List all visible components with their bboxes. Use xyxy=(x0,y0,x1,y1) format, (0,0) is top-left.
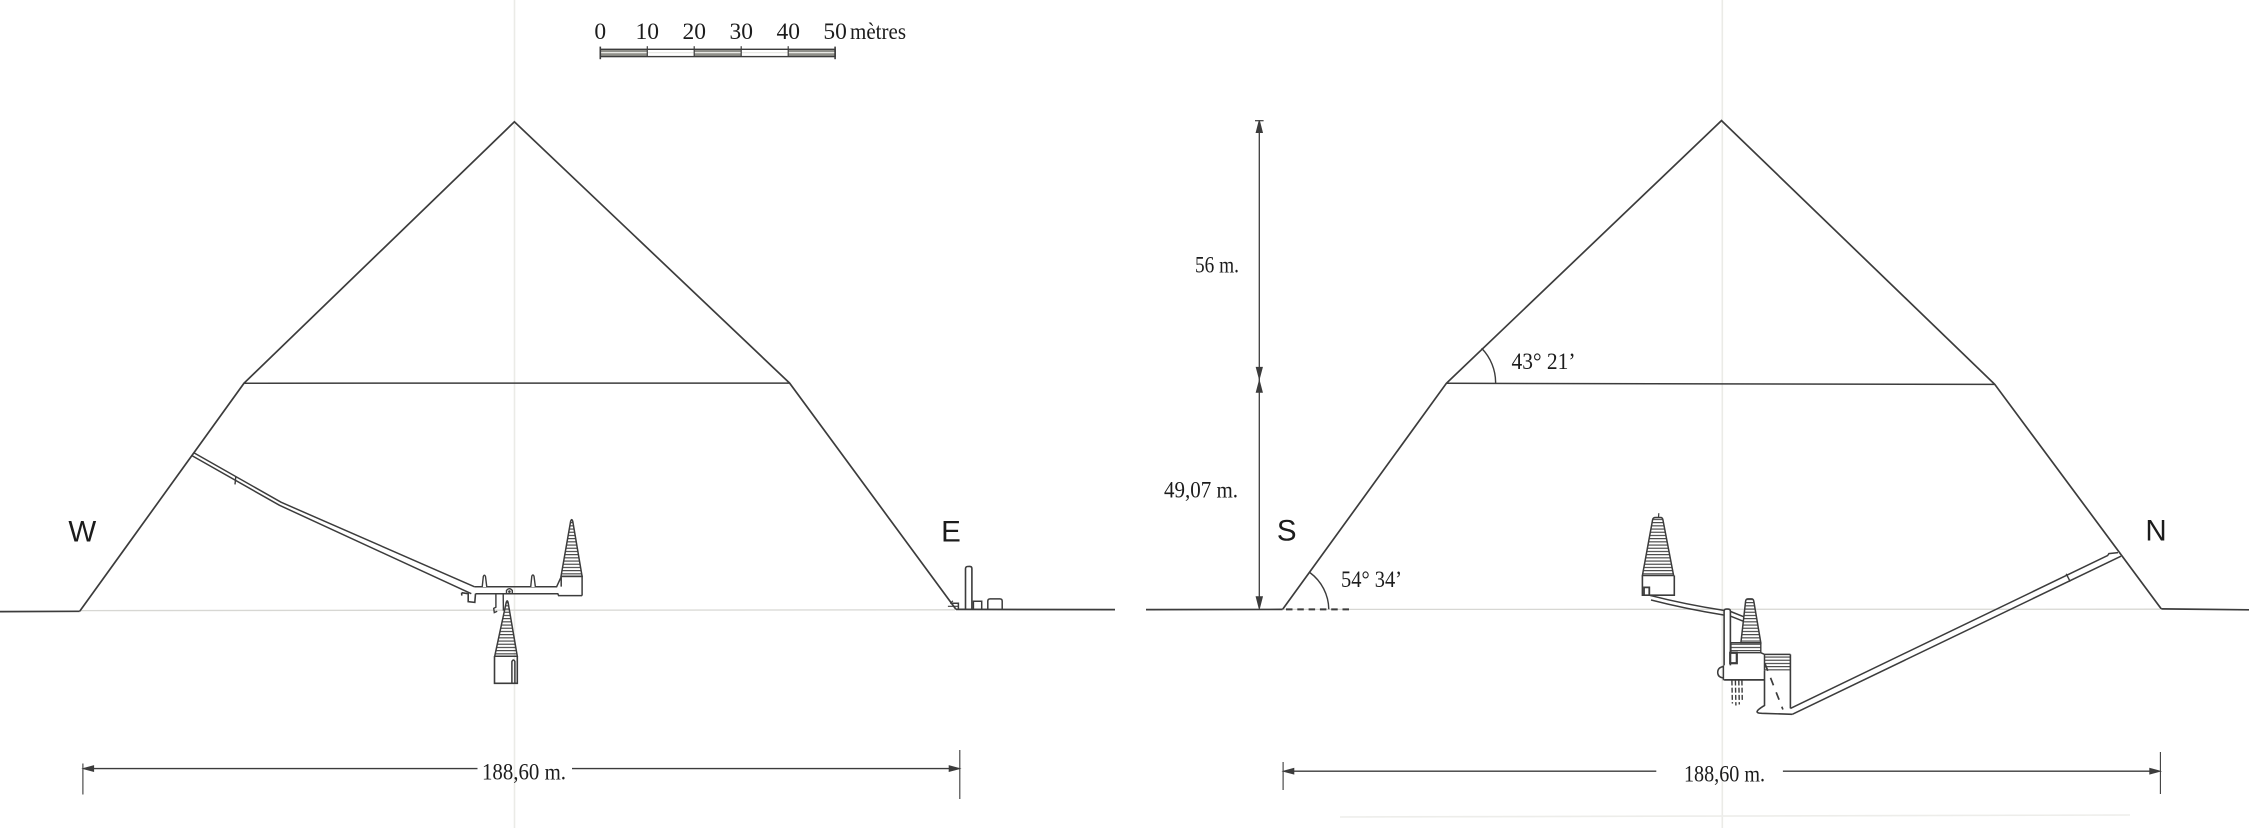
svg-text:E: E xyxy=(941,515,961,548)
svg-text:S: S xyxy=(1277,514,1297,547)
svg-text:N: N xyxy=(2145,514,2166,547)
svg-text:W: W xyxy=(68,515,96,548)
svg-text:mètres: mètres xyxy=(850,19,906,45)
svg-text:10: 10 xyxy=(636,19,660,45)
svg-text:50: 50 xyxy=(823,19,847,45)
svg-text:20: 20 xyxy=(682,19,706,45)
svg-text:54° 34’: 54° 34’ xyxy=(1341,567,1402,593)
svg-text:49,07 m.: 49,07 m. xyxy=(1164,478,1238,504)
svg-text:43° 21’: 43° 21’ xyxy=(1512,349,1576,375)
svg-text:0: 0 xyxy=(594,19,606,45)
svg-text:30: 30 xyxy=(729,19,753,45)
svg-text:56 m.: 56 m. xyxy=(1195,253,1239,279)
svg-text:188,60 m.: 188,60 m. xyxy=(482,760,566,786)
svg-text:188,60 m.: 188,60 m. xyxy=(1684,762,1765,788)
svg-text:40: 40 xyxy=(776,19,800,45)
